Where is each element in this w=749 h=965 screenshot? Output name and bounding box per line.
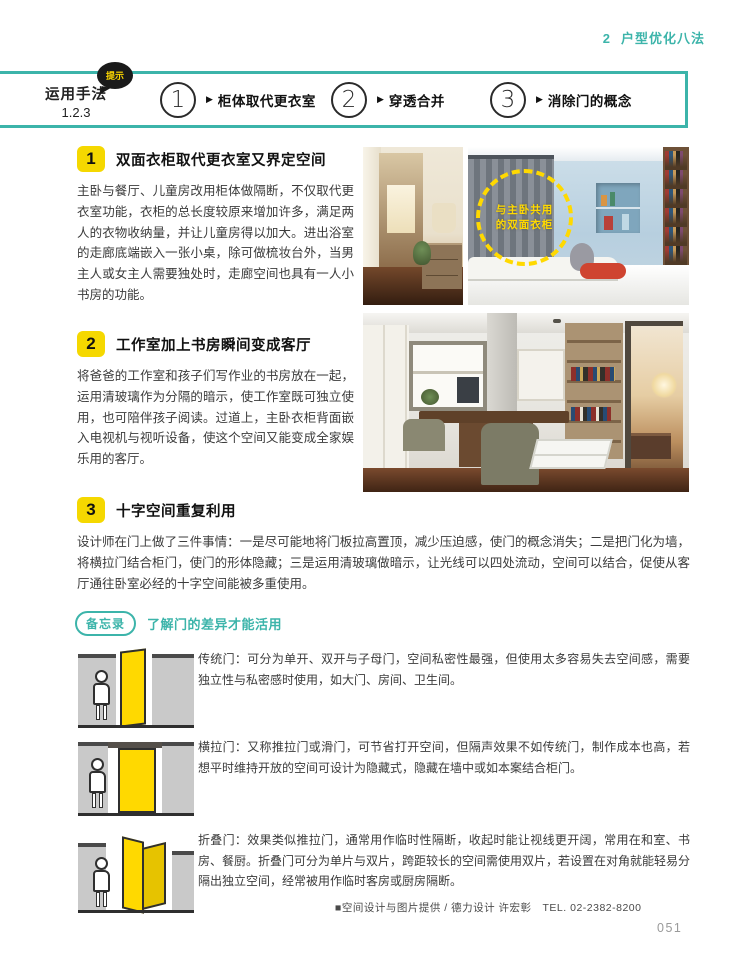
wall-niche-shelf: [596, 183, 640, 233]
door-term: 折叠门：: [198, 833, 247, 847]
section-title: 双面衣柜取代更衣室又界定空间: [116, 149, 326, 170]
study-chair-right: [481, 423, 539, 485]
method-band-title-line2: 1.2.3: [36, 105, 116, 120]
person-leg: [96, 705, 100, 720]
person-leg: [103, 892, 107, 907]
person-head: [91, 758, 104, 771]
photo-study-room: [363, 313, 689, 492]
person-head: [95, 670, 108, 683]
memo-item-1-text: 传统门：可分为单开、双开与子母门，空间私密性最强，但使用太多容易失去空间感，需要…: [198, 649, 690, 690]
annotation-text-line2: 的双面衣柜: [496, 218, 554, 233]
chapter-number: 2: [603, 31, 611, 46]
person-figure: [86, 758, 112, 812]
triangle-bullet-icon: ▶: [377, 94, 384, 105]
section-title: 工作室加上书房瞬间变成客厅: [116, 334, 311, 355]
memo-header: 备忘录 了解门的差异才能活用: [75, 611, 282, 636]
page-number: 051: [657, 921, 682, 935]
photo-corridor: [363, 147, 463, 305]
triangle-bullet-icon: ▶: [206, 94, 213, 105]
door-term: 传统门：: [198, 652, 247, 666]
section-number-badge: 1: [77, 146, 105, 172]
door-term: 横拉门：: [198, 740, 247, 754]
door-description: 可分为单开、双开与子母门，空间私密性最强，但使用太多容易失去空间感，需要独立性与…: [198, 652, 690, 687]
section-number-badge: 2: [77, 331, 105, 357]
study-cabinet-wall: [363, 325, 409, 475]
method-item-label: 柜体取代更衣室: [218, 90, 316, 110]
section-body-text: 设计师在门上做了三件事情：一是尽可能地将门板拉高置顶，减少压迫感，使门的概念消失…: [77, 532, 690, 594]
memo-item-2-text: 横拉门：又称推拉门或滑门，可节省打开空间，但隔声效果不如传统门，制作成本也高，若…: [198, 737, 690, 778]
niche-decor-item: [622, 214, 629, 230]
memo-badge: 备忘录: [75, 611, 136, 636]
ground-line: [78, 910, 194, 913]
person-figure: [90, 857, 116, 911]
wall-right: [172, 851, 194, 910]
study-window: [409, 341, 487, 411]
person-leg: [103, 705, 107, 720]
chapter-title: 户型优化八法: [621, 31, 705, 46]
ground-line: [78, 725, 194, 728]
niche-decor-item: [604, 216, 613, 230]
person-body: [93, 683, 110, 705]
method-item-1: 1 ▶ 柜体取代更衣室: [160, 74, 316, 125]
chapter-header: 2户型优化八法: [603, 28, 705, 47]
method-item-3: 3 ▶ 消除门的概念: [490, 74, 632, 125]
wall-right: [152, 654, 194, 725]
person-body: [93, 870, 110, 892]
person-leg: [99, 793, 103, 808]
tip-bubble-label: 提示: [106, 69, 124, 82]
method-item-2: 2 ▶ 穿透合并: [331, 74, 445, 125]
wall-right: [162, 742, 194, 813]
dresser-drawer-line: [426, 275, 458, 276]
yellow-sliding-door: [118, 748, 156, 813]
bedroom-bed: [631, 433, 671, 459]
section-2-heading: 2 工作室加上书房瞬间变成客厅: [77, 331, 354, 357]
door-description: 又称推拉门或滑门，可节省打开空间，但隔声效果不如传统门，制作成本也高，若想平时维…: [198, 740, 690, 775]
window-plant: [421, 389, 439, 405]
person-leg: [92, 793, 96, 808]
method-band: 提示 运用手法 1.2.3 1 ▶ 柜体取代更衣室 2 ▶ 穿透合并 3 ▶ 消…: [0, 71, 688, 128]
bookshelf-books: [571, 407, 611, 421]
window-night-view: [457, 377, 479, 403]
study-chair-left: [403, 419, 445, 451]
upper-cabinet: [517, 349, 565, 401]
method-number-circle: 2: [331, 82, 367, 118]
section-2: 2 工作室加上书房瞬间变成客厅 将爸爸的工作室和孩子们写作业的书房放在一起，运用…: [77, 331, 354, 470]
memo-item-3-text: 折叠门：效果类似推拉门，通常用作临时性隔断，收起时能让视线更开阔，常用在和室、书…: [198, 830, 690, 892]
section-title: 十字空间重复利用: [116, 500, 236, 521]
tip-speech-bubble-icon: 提示: [97, 62, 133, 89]
person-leg: [96, 892, 100, 907]
annotation-text-line1: 与主卧共用: [496, 203, 554, 218]
sliding-door-illustration: [78, 736, 194, 816]
bookshelf-books: [571, 367, 615, 381]
method-item-label: 消除门的概念: [548, 90, 632, 110]
yellow-folding-door-panel: [142, 842, 166, 910]
book-page: 2户型优化八法 提示 运用手法 1.2.3 1 ▶ 柜体取代更衣室 2 ▶ 穿透…: [0, 0, 749, 965]
dashed-circle-annotation: 与主卧共用 的双面衣柜: [476, 169, 573, 266]
niche-shelf-board: [596, 207, 640, 209]
corridor-plant: [413, 241, 431, 265]
niche-decor-item: [601, 195, 607, 206]
corridor-end-window: [387, 185, 415, 233]
person-body: [89, 771, 106, 793]
door-description: 效果类似推拉门，通常用作临时性隔断，收起时能让视线更开阔，常用在和室、书房、餐厨…: [198, 833, 690, 888]
yellow-swing-door: [120, 648, 146, 727]
roller-blind-bar: [413, 371, 483, 374]
niche-decor-item: [610, 192, 615, 206]
folding-door-illustration: [78, 833, 194, 913]
ceiling-spotlight: [553, 319, 561, 323]
ground-line: [78, 813, 194, 816]
red-pillow: [580, 263, 626, 279]
person-figure: [90, 670, 116, 724]
yellow-folding-door-panel: [122, 836, 144, 913]
swing-door-illustration: [78, 648, 194, 728]
triangle-bullet-icon: ▶: [536, 94, 543, 105]
folding-white-table: [529, 439, 612, 469]
design-credit: ■空间设计与图片提供 / 德力设计 许宏彰 TEL. 02-2382-8200: [335, 900, 642, 915]
method-number-circle: 1: [160, 82, 196, 118]
photo-child-bedroom: 与主卧共用 的双面衣柜: [468, 147, 689, 305]
corridor-lamp: [432, 203, 456, 233]
table-seam-line: [535, 454, 607, 456]
section-body-text: 将爸爸的工作室和孩子们写作业的书房放在一起，运用清玻璃作为分隔的暗示，使工作室既…: [77, 366, 354, 470]
section-1: 1 双面衣柜取代更衣室又界定空间 主卧与餐厅、儿童房改用柜体做隔断，不仅取代更衣…: [77, 146, 354, 306]
method-number-circle: 3: [490, 82, 526, 118]
bedside-lamp-glow: [651, 372, 677, 398]
section-number-badge: 3: [77, 497, 105, 523]
method-item-label: 穿透合并: [389, 90, 445, 110]
bedroom-doorway: [625, 321, 683, 481]
person-head: [95, 857, 108, 870]
section-3: 3 十字空间重复利用 设计师在门上做了三件事情：一是尽可能地将门板拉高置顶，减少…: [77, 497, 690, 594]
section-1-heading: 1 双面衣柜取代更衣室又界定空间: [77, 146, 354, 172]
section-3-heading: 3 十字空间重复利用: [77, 497, 690, 523]
dresser-drawer-line: [426, 259, 458, 260]
section-body-text: 主卧与餐厅、儿童房改用柜体做隔断，不仅取代更衣室功能，衣柜的总长度较原来增加许多…: [77, 181, 354, 306]
memo-title: 了解门的差异才能活用: [147, 614, 282, 633]
